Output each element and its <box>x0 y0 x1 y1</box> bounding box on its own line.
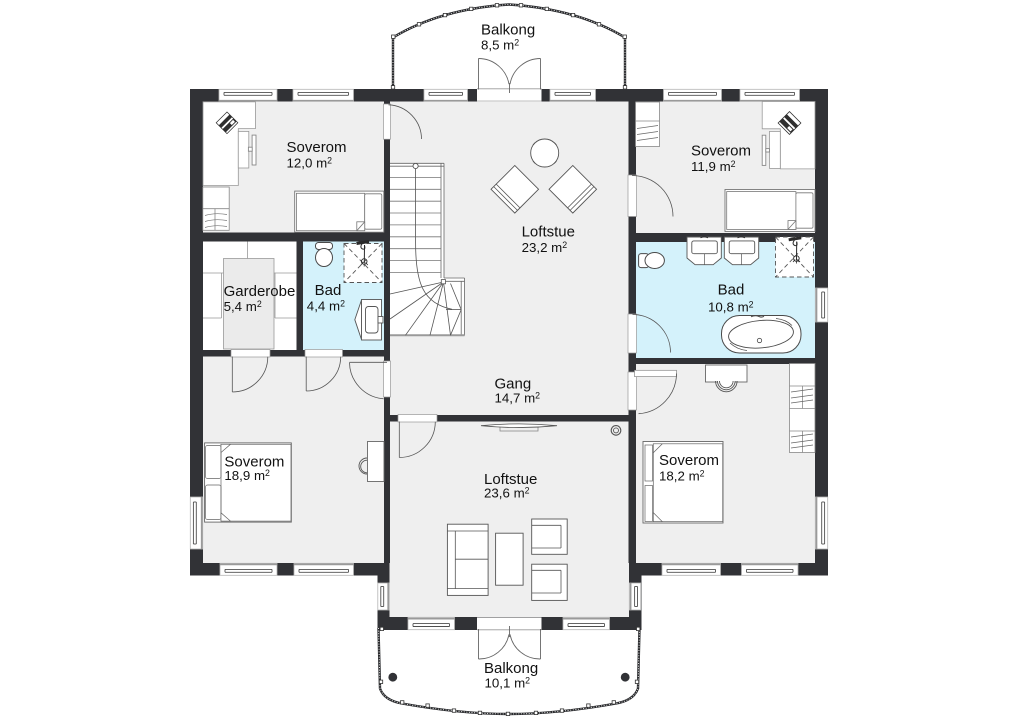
svg-text:Loftstue: Loftstue <box>522 223 575 240</box>
svg-text:18,9 m2: 18,9 m2 <box>224 468 270 483</box>
svg-text:8,5 m2: 8,5 m2 <box>481 38 519 53</box>
svg-text:5,4 m2: 5,4 m2 <box>224 299 262 314</box>
svg-text:Garderobe: Garderobe <box>224 283 296 300</box>
svg-text:Balkong: Balkong <box>484 660 538 677</box>
svg-text:4,4 m2: 4,4 m2 <box>307 299 345 314</box>
svg-text:Soverom: Soverom <box>287 139 347 156</box>
svg-text:18,2 m2: 18,2 m2 <box>659 469 705 484</box>
svg-text:10,8 m2: 10,8 m2 <box>708 300 754 315</box>
svg-text:Soverom: Soverom <box>691 143 751 160</box>
svg-text:Soverom: Soverom <box>659 452 719 469</box>
svg-text:Bad: Bad <box>718 282 745 299</box>
svg-text:23,6 m2: 23,6 m2 <box>484 486 530 501</box>
svg-text:23,2 m2: 23,2 m2 <box>522 240 568 255</box>
svg-text:11,9 m2: 11,9 m2 <box>691 159 736 174</box>
svg-text:10,1 m2: 10,1 m2 <box>485 676 531 691</box>
svg-text:12,0 m2: 12,0 m2 <box>287 155 333 170</box>
svg-text:14,7 m2: 14,7 m2 <box>495 391 541 406</box>
svg-text:Balkong: Balkong <box>481 22 535 39</box>
svg-text:Bad: Bad <box>315 282 342 299</box>
